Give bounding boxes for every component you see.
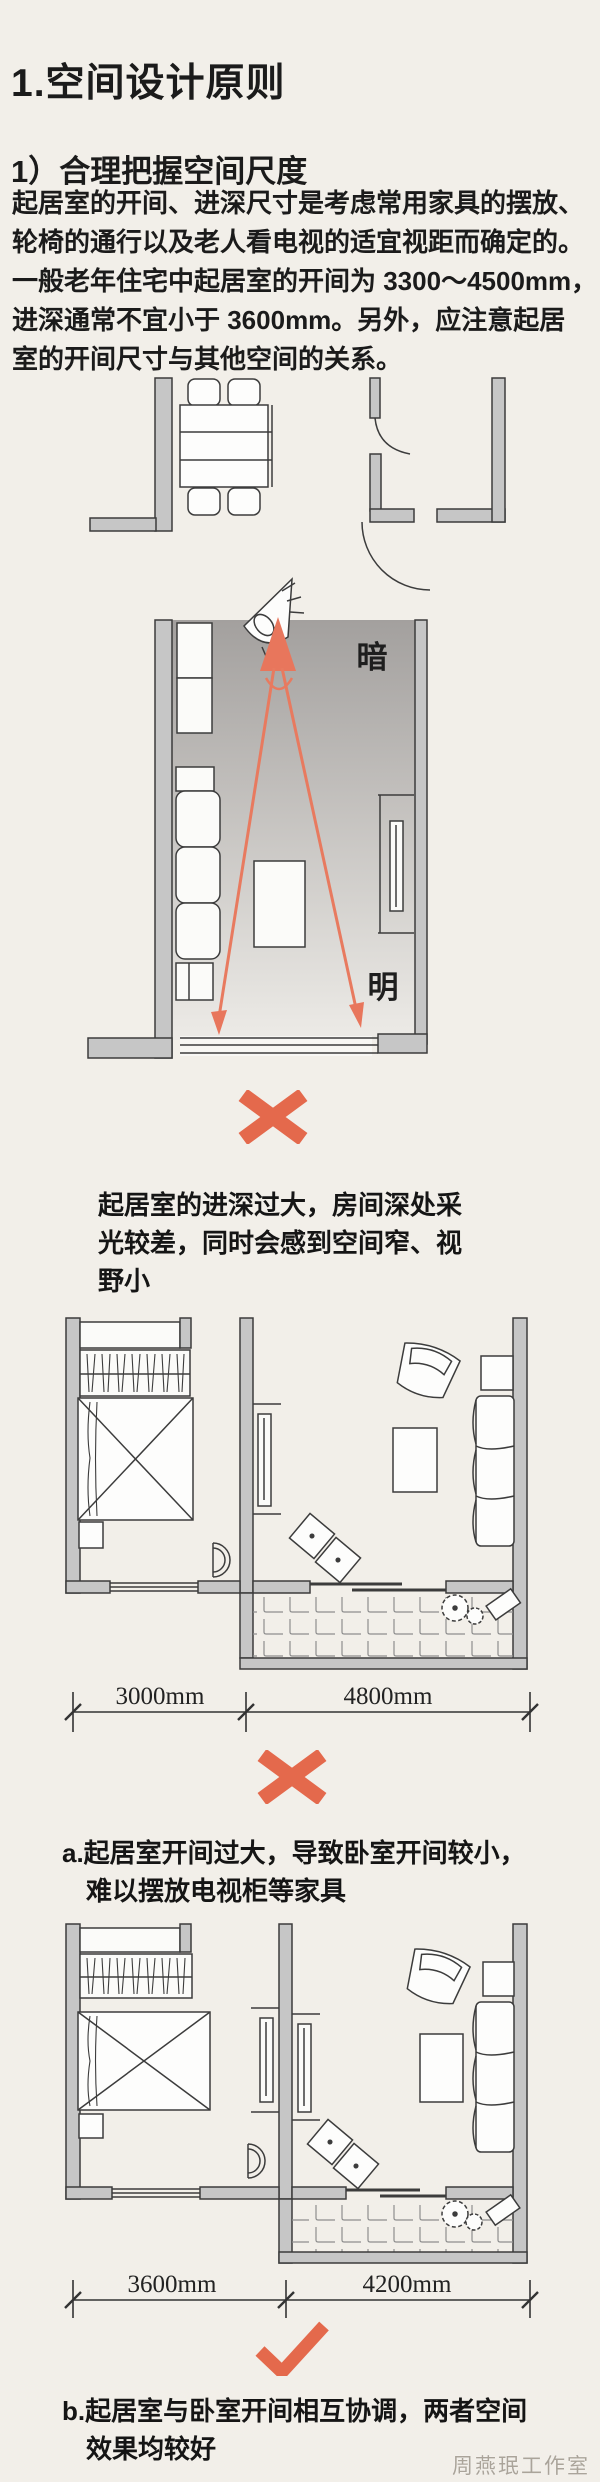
- wall: [378, 1034, 427, 1053]
- wardrobe: [80, 1350, 190, 1396]
- tv-cabinet: [251, 2008, 279, 2112]
- nightstand: [79, 1522, 103, 1548]
- nightstand: [79, 2114, 103, 2138]
- dim-bedroom-width: 3000mm: [116, 1683, 205, 1710]
- wall: [370, 454, 381, 511]
- dim-living-width: 4200mm: [363, 2271, 452, 2298]
- wall: [446, 1581, 513, 1593]
- armchair: [401, 1944, 471, 2009]
- article-page: 1.空间设计原则 1）合理把握空间尺度 起居室的开间、进深尺寸是考虑常用家具的摆…: [0, 0, 600, 2482]
- figure-caption-2: a.起居室开间过大，导致卧室开间较小， 难以摆放电视柜等家具: [62, 1834, 526, 1910]
- sofa: [473, 1396, 514, 1546]
- wall: [66, 2187, 112, 2199]
- studio-watermark: 周燕珉工作室: [452, 2450, 590, 2480]
- floorplan-sightline-diagram: 暗 明: [0, 375, 600, 1065]
- side-cabinet: [177, 678, 212, 733]
- floorplan-3000-4800: [0, 1308, 600, 1674]
- round-chair: [248, 2144, 265, 2178]
- sofa: [176, 767, 220, 1000]
- sofa: [473, 2002, 514, 2152]
- sliding-door: [310, 1584, 446, 1590]
- side-table: [481, 1356, 513, 1390]
- wall: [370, 509, 414, 522]
- dining-table: [180, 379, 272, 515]
- body-line: 一般老年住宅中起居室的开间为 3300～4500mm，: [12, 262, 597, 301]
- wall: [492, 378, 505, 522]
- check-mark-icon: [252, 2320, 332, 2376]
- wall: [200, 2187, 279, 2199]
- page-title: 1.空间设计原则: [11, 52, 286, 108]
- side-table: [483, 1962, 514, 1996]
- wall: [180, 1318, 191, 1348]
- wardrobe: [80, 1954, 192, 1998]
- sliding-door: [346, 2190, 446, 2196]
- door-swing: [375, 418, 410, 454]
- bed: [78, 2012, 210, 2110]
- wall: [155, 378, 172, 531]
- cross-mark-icon: [255, 1750, 329, 1804]
- dimension-row-2: 3600mm 4200mm: [0, 2266, 600, 2318]
- body-line: 室的开间尺寸与其他空间的关系。: [12, 340, 597, 379]
- window: [180, 1036, 378, 1056]
- balcony-left-wall: [240, 1593, 253, 1658]
- body-line: 进深通常不宜小于 3600mm。另外，应注意起居: [12, 301, 597, 340]
- wall: [66, 1581, 110, 1593]
- wall: [292, 2187, 346, 2199]
- coffee-table: [254, 861, 305, 947]
- wall: [446, 2187, 513, 2199]
- label-bright: 明: [368, 970, 399, 1005]
- dimension-row-1: 3000mm 4800mm: [0, 1676, 600, 1734]
- coffee-table: [420, 2034, 463, 2102]
- body-paragraph: 起居室的开间、进深尺寸是考虑常用家具的摆放、 轮椅的通行以及老人看电视的适宜视距…: [12, 184, 597, 379]
- window: [80, 1928, 180, 1952]
- wall: [198, 1581, 240, 1593]
- tv-cabinet: [292, 2014, 320, 2120]
- wall: [513, 1318, 527, 1669]
- armchair: [391, 1338, 461, 1403]
- window: [80, 1322, 180, 1348]
- window: [112, 2189, 200, 2197]
- balcony-tiles: [253, 1593, 513, 1658]
- wall: [370, 378, 380, 418]
- wall: [90, 518, 156, 531]
- wall: [279, 1924, 292, 2199]
- wall: [415, 620, 427, 1044]
- wall: [240, 1658, 527, 1669]
- wall: [180, 1924, 191, 1952]
- tv-cabinet: [253, 1404, 281, 1514]
- floorplan-3600-4200: [0, 1916, 600, 2264]
- wall: [279, 2252, 527, 2263]
- side-cabinet: [177, 623, 212, 678]
- round-chair: [213, 1543, 230, 1577]
- wall: [253, 1581, 310, 1593]
- body-line: 轮椅的通行以及老人看电视的适宜视距而确定的。: [12, 223, 597, 262]
- dim-bedroom-width: 3600mm: [128, 2271, 217, 2298]
- dim-living-width: 4800mm: [344, 1683, 433, 1710]
- coffee-table: [393, 1428, 437, 1492]
- bed: [78, 1398, 193, 1520]
- wall: [240, 1318, 253, 1593]
- label-dark: 暗: [357, 640, 388, 675]
- wall: [155, 620, 172, 1058]
- wall: [88, 1038, 172, 1058]
- figure-caption-1: 起居室的进深过大，房间深处采 光较差，同时会感到空间窄、视 野小: [98, 1186, 462, 1300]
- cross-mark-icon: [236, 1090, 310, 1144]
- body-line: 起居室的开间、进深尺寸是考虑常用家具的摆放、: [12, 184, 597, 223]
- window: [110, 1583, 198, 1591]
- door-swing: [362, 522, 430, 590]
